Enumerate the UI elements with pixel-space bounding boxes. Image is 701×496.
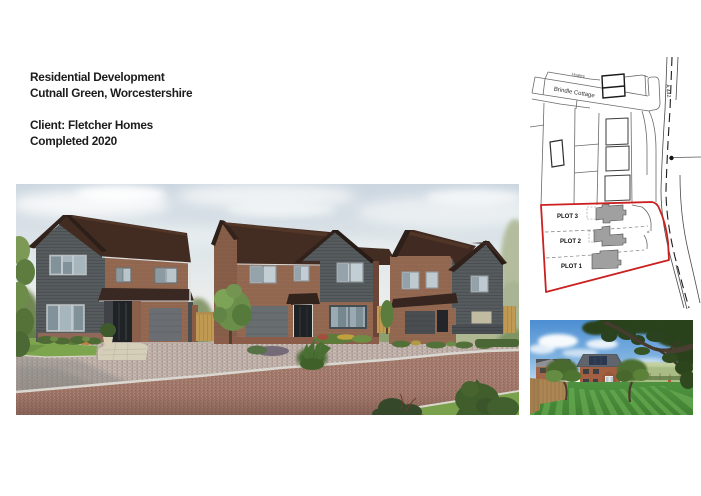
svg-text:A 442: A 442: [664, 84, 672, 98]
svg-text:PLOT 1: PLOT 1: [561, 264, 583, 270]
svg-text:Huates: Huates: [571, 71, 585, 78]
svg-text:PLOT 3: PLOT 3: [557, 214, 579, 220]
svg-text:d.: d.: [647, 229, 650, 234]
svg-text:PLOT 2: PLOT 2: [560, 239, 582, 245]
